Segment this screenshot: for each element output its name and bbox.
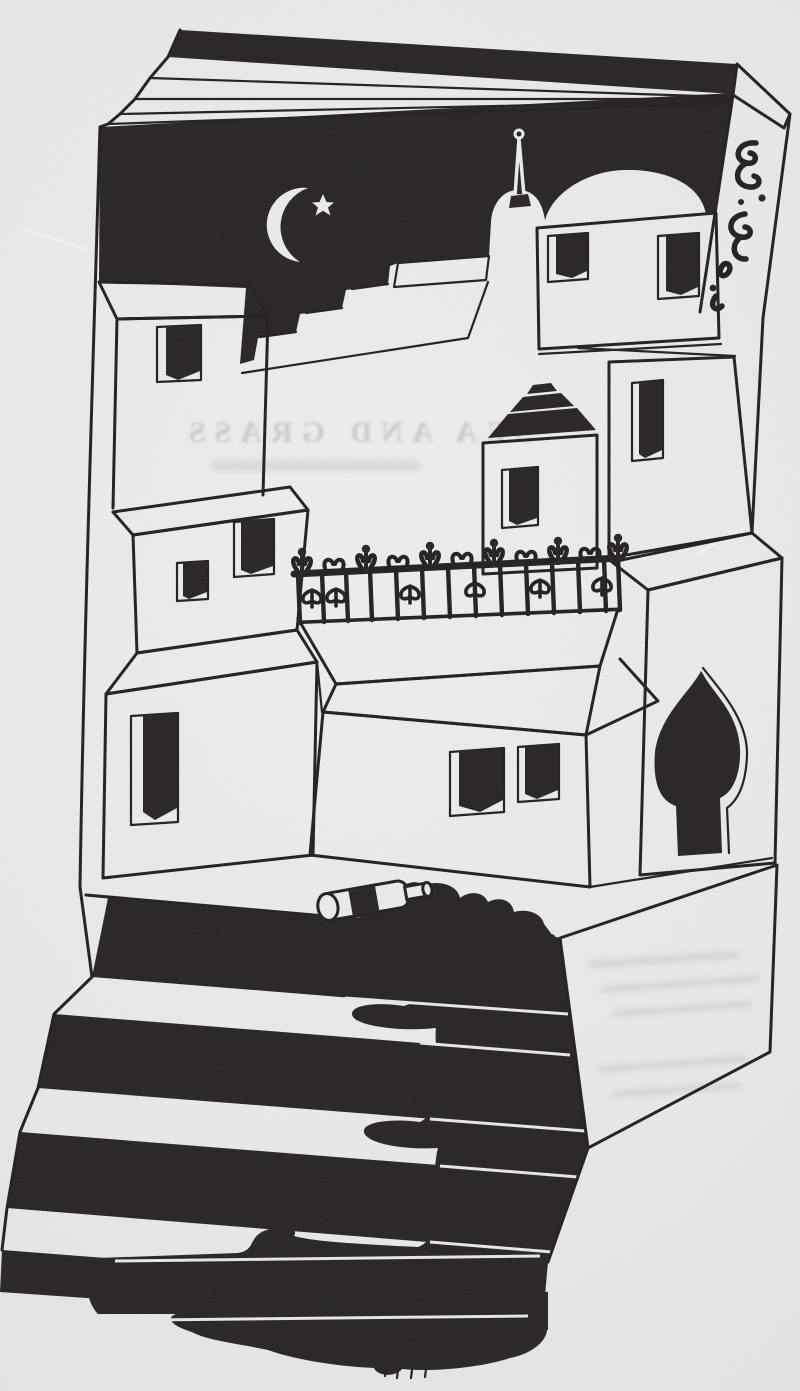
paper-grain	[0, 0, 800, 1391]
book-illustration: SEA AND GRASS	[0, 0, 800, 1391]
illustration-canvas	[0, 0, 800, 1391]
